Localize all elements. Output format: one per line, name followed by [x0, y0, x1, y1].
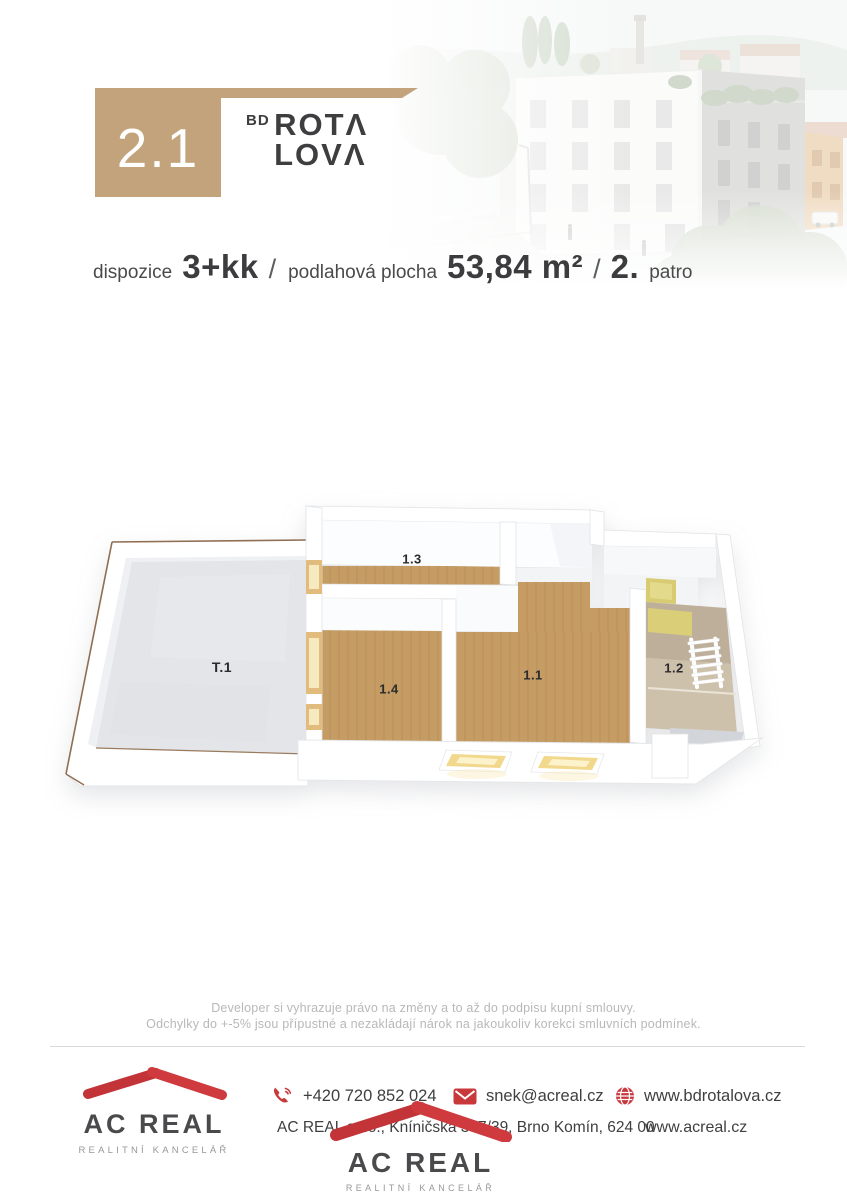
footer-divider [50, 1046, 805, 1047]
agency-logo: AC REAL REALITNÍ KANCELÁŘ [75, 1066, 233, 1156]
flyer-page: 2.1 BD ROTΛ LOVΛ dispozice 3+kk / podlah… [0, 0, 847, 1200]
floor-value: 2. [611, 248, 640, 286]
disposition-value: 3+kk [182, 248, 258, 286]
apartment-summary: dispozice 3+kk / podlahová plocha 53,84 … [93, 248, 699, 286]
unit-number: 2.1 [117, 116, 199, 180]
disclaimer: Developer si vyhrazuje právo na změny a … [0, 1000, 847, 1032]
phone-icon [272, 1085, 294, 1107]
disclaimer-line1: Developer si vyhrazuje právo na změny a … [0, 1000, 847, 1016]
project-website: www.bdrotalova.cz [615, 1086, 782, 1106]
room-label-1-2: 1.2 [664, 661, 684, 676]
terrace-structure [66, 540, 308, 786]
brand-name: ROTΛ LOVΛ [274, 110, 368, 171]
brand-accent-bar [95, 88, 418, 98]
floor-label: patro [649, 262, 692, 284]
brand-logo: BD ROTΛ LOVΛ [246, 110, 368, 171]
bathroom-door [652, 734, 688, 778]
front-window-1 [439, 750, 512, 779]
room-label-1-3: 1.3 [402, 552, 422, 567]
hall-floor [516, 568, 592, 584]
separator: / [593, 254, 601, 285]
side-windows [306, 560, 322, 730]
agency-tagline: REALITNÍ KANCELÁŘ [75, 1145, 233, 1156]
room-label-1-1: 1.1 [523, 668, 543, 683]
website-project-url[interactable]: www.bdrotalova.cz [644, 1087, 782, 1106]
floor-plan-rendering [50, 482, 800, 892]
brand-prefix: BD [246, 113, 270, 128]
roof-icon [324, 1098, 517, 1142]
room-label-1-4: 1.4 [379, 682, 399, 697]
disclaimer-line2: Odchylky do +-5% jsou přípustné a nezakl… [0, 1016, 847, 1032]
separator: / [269, 254, 277, 285]
front-window-2 [531, 752, 604, 781]
room-label-terrace: T.1 [212, 659, 232, 675]
agency-name: AC REAL [324, 1147, 517, 1179]
disposition-label: dispozice [93, 262, 172, 284]
agency-logo-center: AC REAL REALITNÍ KANCELÁŘ [324, 1098, 517, 1193]
website-agency-url[interactable]: www.acreal.cz [645, 1119, 747, 1137]
area-value: 53,84 m² [447, 248, 583, 286]
room-1-4-floor [312, 630, 442, 748]
front-wall [298, 738, 762, 784]
floor-plan: T.1 1.3 1.4 1.1 1.2 [50, 482, 800, 892]
unit-badge: 2.1 [95, 98, 221, 197]
agency-name: AC REAL [75, 1109, 233, 1140]
room-1-3-floor [312, 566, 502, 585]
agency-tagline: REALITNÍ KANCELÁŘ [324, 1183, 517, 1193]
area-label: podlahová plocha [288, 262, 437, 284]
roof-icon [76, 1066, 232, 1102]
globe-icon [615, 1086, 635, 1106]
brand-name-line2: LOVΛ [274, 137, 366, 172]
